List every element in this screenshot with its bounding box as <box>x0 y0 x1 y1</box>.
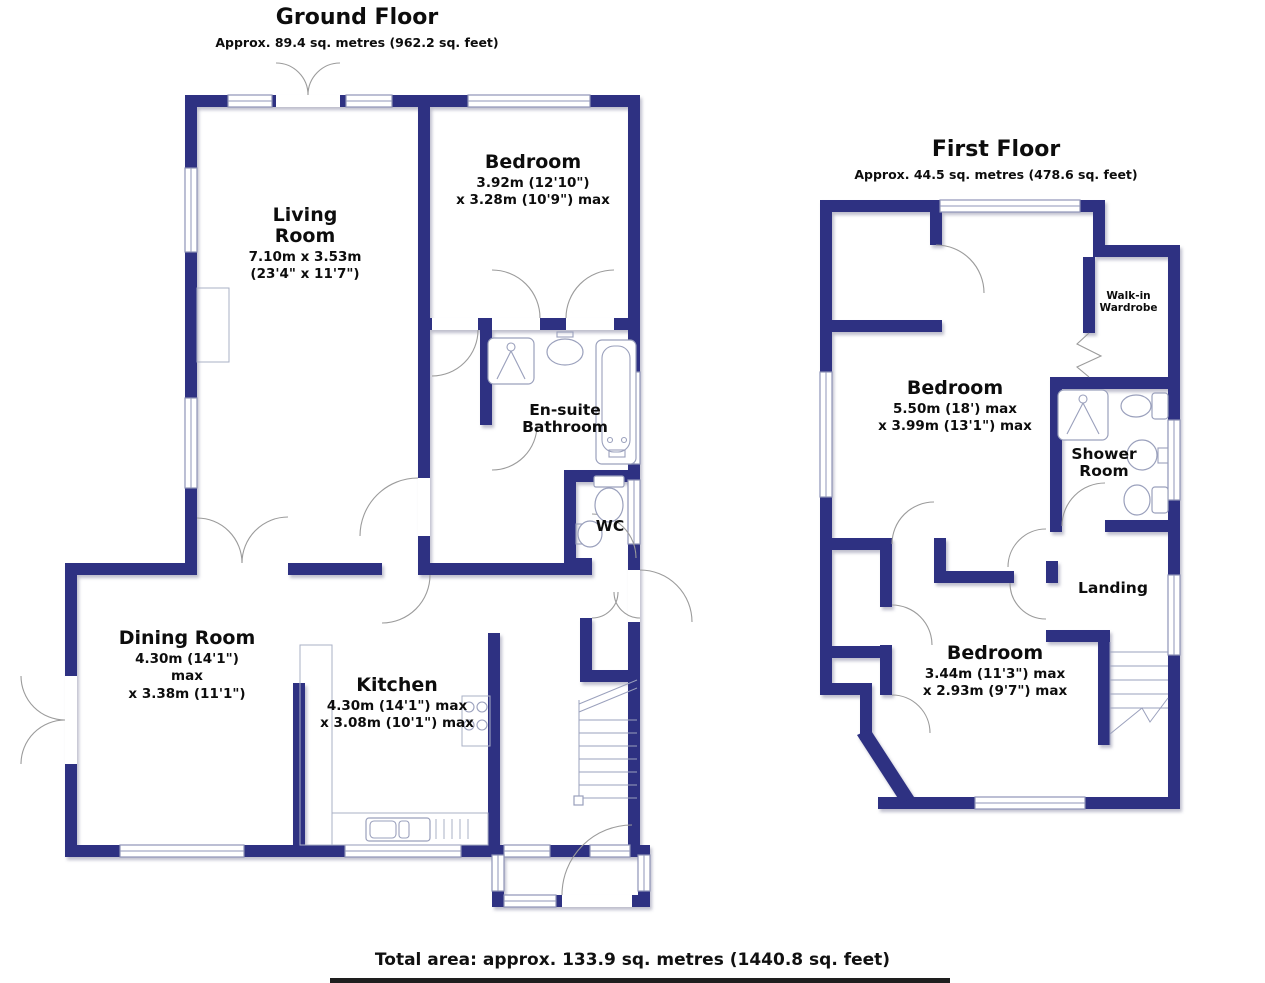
floorplan-page: Ground Floor Approx. 89.4 sq. metres (96… <box>0 0 1265 983</box>
room-label-ensuite: En-suite Bathroom <box>505 402 625 436</box>
living-room-chimney <box>197 288 229 362</box>
room-label-wc: WC <box>580 518 640 535</box>
total-area-text: Total area: approx. 133.9 sq. metres (14… <box>0 950 1265 970</box>
ground-floor-stairs <box>574 680 637 805</box>
shower-tray <box>488 338 534 384</box>
room-label-bedroom2: Bedroom 3.44m (11'3") maxx 2.93m (9'7") … <box>905 643 1085 701</box>
ensuite-basin <box>547 332 583 365</box>
room-label-kitchen: Kitchen 4.30m (14'1") maxx 3.08m (10'1")… <box>307 675 487 733</box>
shower-tray <box>1058 390 1108 440</box>
footer-divider <box>330 978 950 983</box>
ground-floor-subtitle: Approx. 89.4 sq. metres (962.2 sq. feet) <box>182 35 532 50</box>
first-floor-title: First Floor <box>821 138 1171 162</box>
wc-toilet <box>594 476 624 522</box>
room-label-landing: Landing <box>1053 580 1173 597</box>
folding-door <box>1077 333 1101 377</box>
wc-fixtures <box>576 476 624 547</box>
ground-floor-header: Ground Floor Approx. 89.4 sq. metres (96… <box>182 6 532 50</box>
ground-floor-title: Ground Floor <box>182 6 532 30</box>
first-floor-header: First Floor Approx. 44.5 sq. metres (478… <box>821 138 1171 182</box>
room-label-bedroom-ground: Bedroom 3.92m (12'10")x 3.28m (10'9") ma… <box>443 152 623 210</box>
ensuite-fixtures <box>488 332 636 464</box>
room-label-wardrobe: Walk-in Wardrobe <box>1086 290 1171 314</box>
room-label-living: Living Room 7.10m x 3.53m(23'4" x 11'7") <box>245 205 365 284</box>
room-label-shower: Shower Room <box>1064 446 1144 480</box>
first-floor-subtitle: Approx. 44.5 sq. metres (478.6 sq. feet) <box>821 167 1171 182</box>
room-label-bedroom1: Bedroom 5.50m (18') maxx 3.99m (13'1") m… <box>865 378 1045 436</box>
shower-room-toilet <box>1121 393 1168 419</box>
room-label-dining: Dining Room 4.30m (14'1") maxx 3.38m (11… <box>117 628 257 704</box>
first-floor-stairs <box>1110 642 1168 745</box>
shower-room-bidet <box>1124 485 1168 515</box>
